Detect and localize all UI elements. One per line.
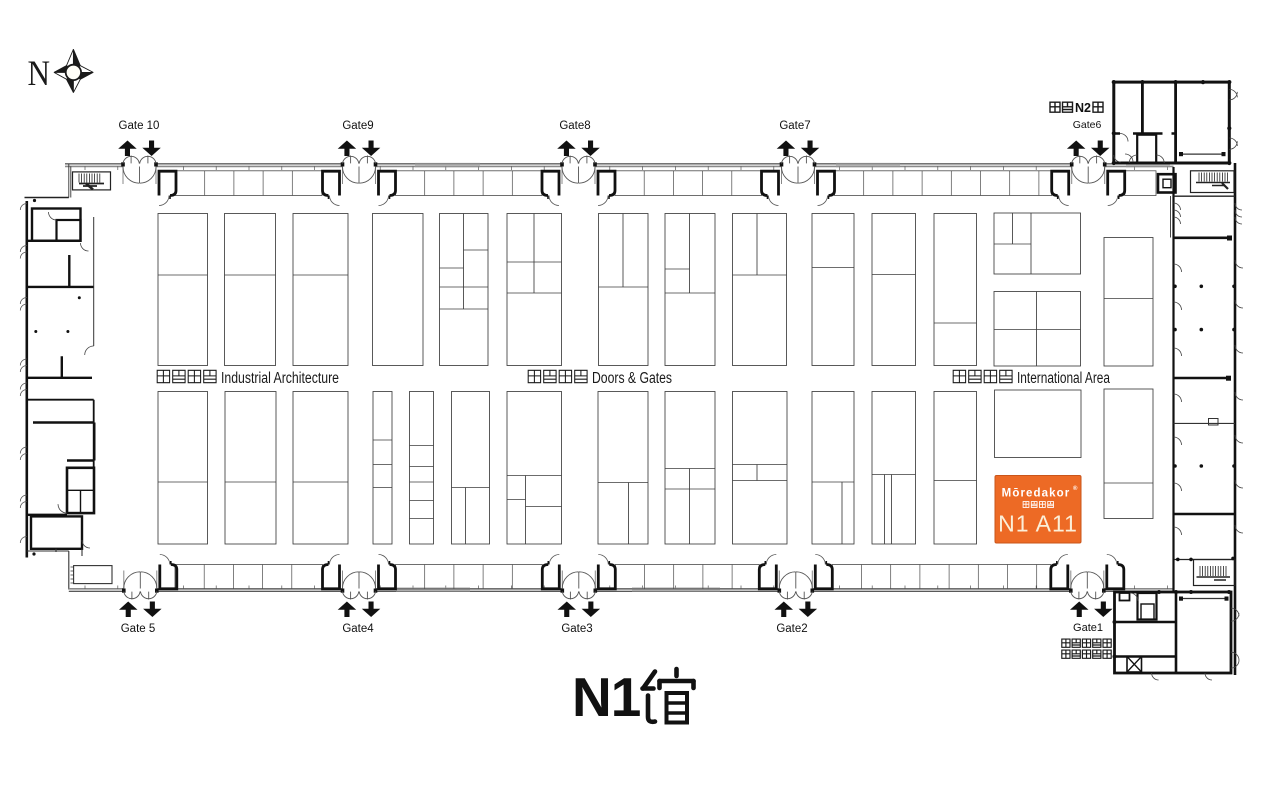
svg-text:N1 A11: N1 A11 [998, 511, 1078, 537]
svg-text:N1: N1 [572, 666, 641, 728]
svg-text:Gate3: Gate3 [561, 623, 592, 635]
svg-text:Gate8: Gate8 [559, 120, 590, 132]
svg-text:N: N [28, 53, 51, 93]
svg-text:Gate1: Gate1 [1073, 622, 1103, 634]
svg-text:Gate 5: Gate 5 [121, 623, 156, 635]
svg-text:N2: N2 [1075, 101, 1091, 115]
svg-text:Industrial Architecture: Industrial Architecture [221, 370, 339, 387]
svg-text:Gate2: Gate2 [776, 623, 807, 635]
svg-text:Gate4: Gate4 [342, 623, 374, 635]
svg-text:Gate 10: Gate 10 [119, 120, 160, 132]
svg-text:Mōredakor: Mōredakor [1002, 488, 1071, 500]
svg-text:Doors & Gates: Doors & Gates [592, 370, 672, 387]
svg-text:Gate9: Gate9 [342, 120, 373, 132]
svg-text:Gate7: Gate7 [779, 120, 810, 132]
svg-text:®: ® [1073, 485, 1078, 492]
svg-text:International Area: International Area [1017, 370, 1110, 387]
svg-text:Gate6: Gate6 [1073, 119, 1102, 131]
